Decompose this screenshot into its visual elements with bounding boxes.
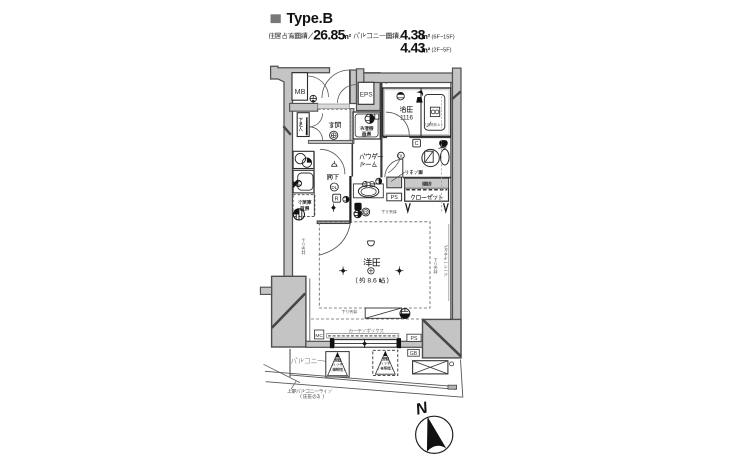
svg-text:MB: MB [295, 87, 306, 96]
svg-text:m²: m² [342, 32, 352, 41]
svg-text:PS: PS [391, 195, 399, 201]
svg-text:(6F~15F): (6F~15F) [432, 34, 455, 40]
svg-text:(2F~5F): (2F~5F) [432, 48, 452, 54]
svg-text:R: R [335, 197, 339, 203]
svg-text:Type.B: Type.B [287, 11, 333, 27]
svg-text:PS: PS [411, 336, 418, 342]
svg-text:GB: GB [410, 351, 418, 357]
svg-text:G: G [364, 210, 368, 215]
svg-text:26.85: 26.85 [313, 26, 345, 42]
svg-text:C: C [415, 141, 419, 147]
svg-text:1116: 1116 [400, 114, 413, 121]
svg-text:DL: DL [398, 154, 404, 159]
svg-text:MC: MC [315, 333, 323, 339]
svg-text:DL: DL [331, 185, 337, 190]
svg-text:EPS: EPS [360, 91, 373, 98]
svg-text:m²: m² [421, 45, 431, 54]
svg-text:8.6: 8.6 [367, 278, 377, 285]
